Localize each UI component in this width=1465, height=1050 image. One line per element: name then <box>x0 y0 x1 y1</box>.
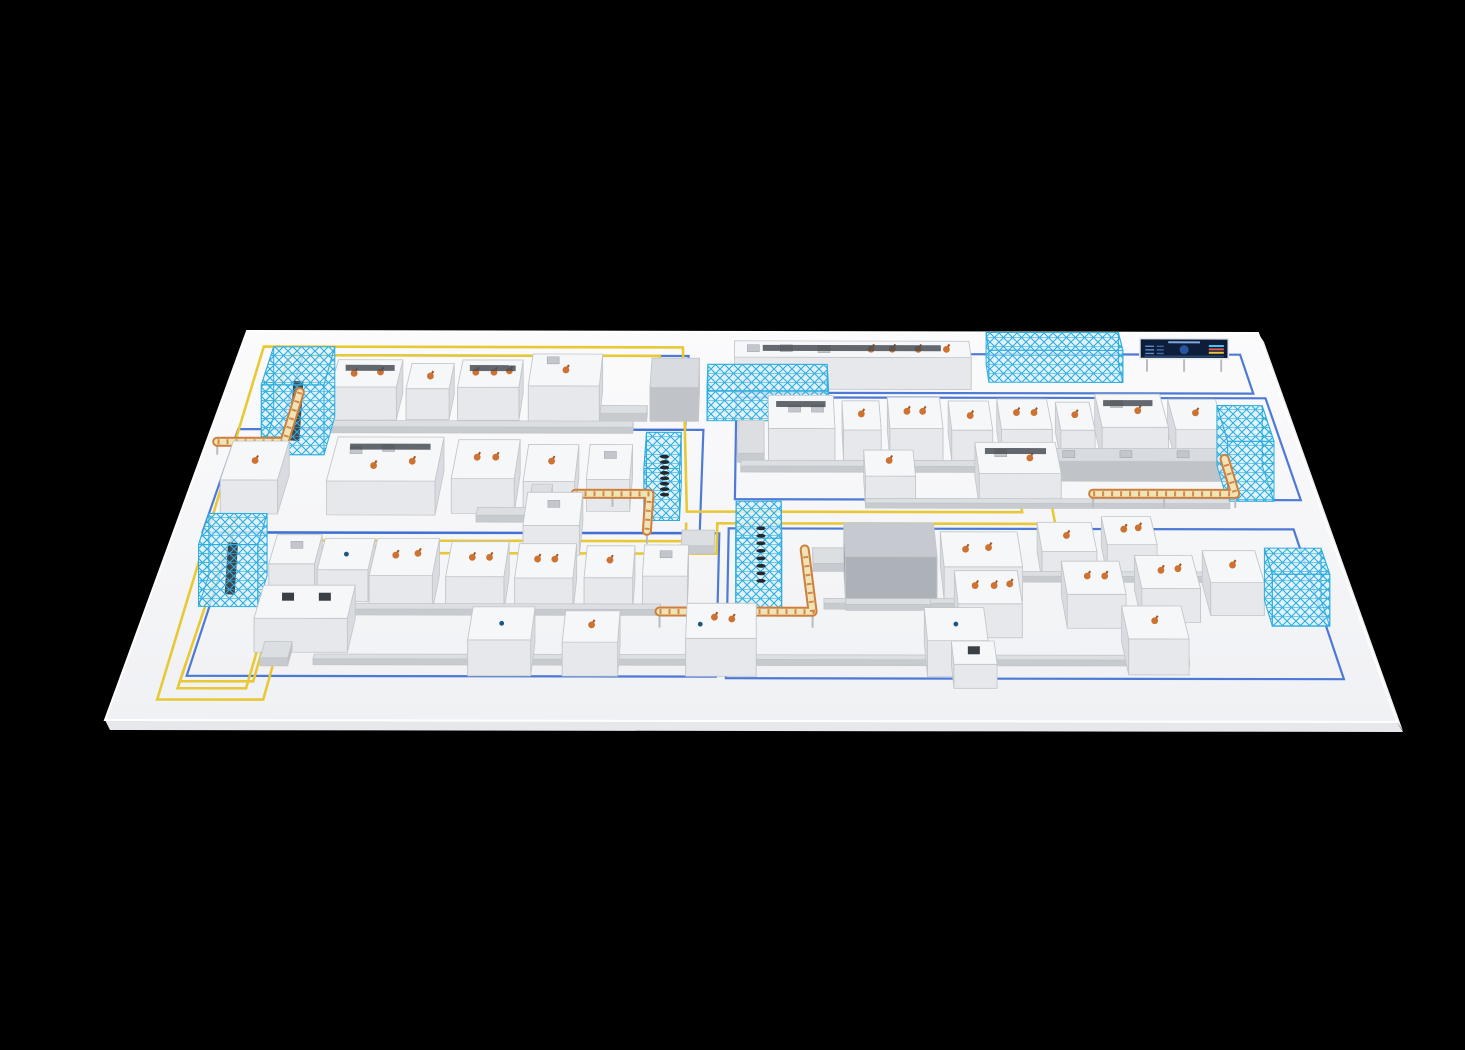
robot-arm-marker <box>370 462 377 469</box>
robot-arm-marker <box>607 557 614 564</box>
dashboard-glyph <box>1180 345 1189 354</box>
equipment-marker <box>319 593 331 601</box>
box-front-face <box>406 389 449 420</box>
buffer-disc <box>660 487 669 491</box>
robot-arm-marker <box>1084 573 1091 580</box>
box-top-face <box>975 442 1061 473</box>
robot-arm-marker <box>886 457 893 464</box>
storage-rack <box>986 332 1123 382</box>
robot-arm-marker <box>1151 617 1158 624</box>
robot-cell <box>1061 561 1126 628</box>
box-front-face <box>643 576 688 608</box>
equipment-marker <box>291 541 303 548</box>
box-front-face <box>598 413 646 421</box>
conveyor-segment <box>598 405 647 421</box>
press-machine <box>650 358 700 421</box>
buffer-disc <box>660 476 669 480</box>
robot-cell <box>951 641 997 688</box>
box-front-face <box>528 386 599 422</box>
factory-floor-3d-viewport[interactable] <box>0 0 1465 1050</box>
rack-truss <box>199 513 268 544</box>
robot-arm-marker <box>1134 407 1141 414</box>
operator-marker <box>499 621 504 626</box>
robot-arm-marker <box>562 367 569 374</box>
buffer-disc <box>756 556 765 560</box>
box-top-face <box>329 421 633 428</box>
box-front-face <box>220 480 277 514</box>
box-top-face <box>458 360 524 387</box>
storage-rack <box>1264 548 1329 626</box>
robot-arm-marker <box>1006 581 1013 588</box>
operator-marker <box>698 622 703 627</box>
robot-arm-marker <box>427 373 434 380</box>
robot-arm-marker <box>1026 455 1033 462</box>
robot-arm-marker <box>1158 567 1165 574</box>
equipment-marker <box>1063 451 1075 458</box>
conveyor-segment <box>329 421 633 434</box>
robot-arm-marker <box>728 616 735 623</box>
box-top-face <box>254 585 355 618</box>
robot-arm-marker <box>904 408 911 415</box>
operator-marker <box>953 622 958 627</box>
robot-cell <box>686 603 757 676</box>
rack-truss <box>1272 574 1330 626</box>
box-front-face <box>329 427 633 434</box>
robot-cell <box>451 440 520 514</box>
box-top-face <box>997 399 1053 429</box>
turntable-station <box>260 641 292 665</box>
box-top-face <box>1061 561 1126 594</box>
box-front-face <box>954 664 997 688</box>
box-top-face <box>523 492 583 525</box>
box-top-face <box>515 544 577 578</box>
buffer-disc <box>756 526 765 530</box>
buffer-disc <box>660 460 669 464</box>
rack-truss <box>989 350 1123 382</box>
box-top-face <box>650 358 700 387</box>
box-top-face <box>1095 394 1169 427</box>
robot-arm-marker <box>1063 532 1070 539</box>
robot-arm-marker <box>1013 409 1020 416</box>
box-top-face <box>844 523 937 557</box>
robot-arm-marker <box>1175 565 1182 572</box>
press-machine <box>844 523 937 601</box>
robot-arm-marker <box>415 550 422 557</box>
buffer-disc <box>660 455 669 459</box>
robot-arm-marker <box>474 454 481 461</box>
box-top-face <box>846 599 931 605</box>
buffer-disc <box>660 493 669 497</box>
box-front-face <box>650 387 698 421</box>
box-top-face <box>269 535 322 564</box>
box-top-face <box>451 440 520 479</box>
buffer-tower <box>736 501 782 610</box>
robot-arm-marker <box>492 454 499 461</box>
robot-arm-marker <box>1071 411 1078 418</box>
robot-cell <box>975 442 1061 507</box>
robot-cell <box>369 539 439 612</box>
box-top-face <box>738 420 765 453</box>
robot-cell <box>220 441 289 514</box>
robot-cell <box>528 354 602 422</box>
robot-arm-marker <box>1031 409 1038 416</box>
box-front-face <box>846 604 931 610</box>
robot-arm-marker <box>991 582 998 589</box>
equipment-marker <box>547 357 559 364</box>
buffer-disc <box>660 471 669 475</box>
conveyor-segment <box>846 599 931 611</box>
conveyor-segment <box>865 498 1230 508</box>
equipment-marker <box>660 551 672 558</box>
buffer-disc <box>660 466 669 470</box>
box-front-face <box>1211 583 1265 616</box>
buffer-disc <box>756 534 765 538</box>
robot-arm-marker <box>1120 526 1127 533</box>
robot-cell <box>406 363 454 419</box>
box-top-face <box>446 542 510 577</box>
robot-arm-marker <box>943 346 950 353</box>
conveyor-segment <box>813 548 847 572</box>
box-top-face <box>643 545 689 576</box>
robot-arm-marker <box>985 544 992 551</box>
robot-cell <box>864 450 916 506</box>
box-top-face <box>326 437 444 481</box>
rack-truss <box>986 332 1123 350</box>
robot-cell <box>768 395 835 462</box>
equipment-marker <box>282 593 294 601</box>
robot-arm-marker <box>548 458 555 465</box>
box-front-face <box>813 563 846 571</box>
box-top-face <box>686 603 757 638</box>
robot-cell <box>1202 551 1264 616</box>
rack-truss <box>707 364 829 391</box>
rack-truss <box>261 347 335 385</box>
storage-rack <box>199 513 268 606</box>
box-top-face <box>681 530 714 546</box>
rack-truss <box>736 501 782 538</box>
robot-arm-marker <box>392 552 399 559</box>
box-top-face <box>768 395 835 428</box>
box-top-face <box>940 532 1022 567</box>
box-front-face <box>468 640 531 676</box>
buffer-disc <box>756 571 765 575</box>
robot-arm-marker <box>919 408 926 415</box>
buffer-disc <box>756 579 765 583</box>
box-front-face <box>845 557 937 601</box>
robot-cell <box>331 360 403 420</box>
box-top-face <box>887 397 943 428</box>
robot-arm-marker <box>588 621 595 628</box>
equipment-marker <box>1177 451 1189 458</box>
box-top-face <box>1101 517 1157 545</box>
box-front-face <box>458 387 519 420</box>
box-top-face <box>586 444 632 479</box>
robot-arm-marker <box>551 556 558 563</box>
robot-arm-marker <box>967 412 974 419</box>
box-top-face <box>260 641 292 657</box>
equipment-marker <box>548 500 560 507</box>
box-front-face <box>331 387 397 420</box>
robot-arm-marker <box>252 457 259 464</box>
robot-arm-marker <box>962 546 969 553</box>
buffer-disc <box>756 541 765 545</box>
robot-arm-marker <box>486 554 493 561</box>
robot-arm-marker <box>534 556 541 563</box>
box-top-face <box>598 405 647 413</box>
control-room <box>326 437 444 515</box>
equipment-marker <box>747 345 759 352</box>
box-front-face <box>769 428 835 462</box>
equipment-marker <box>604 451 616 458</box>
robot-cell <box>1122 606 1190 675</box>
robot-arm-marker <box>351 370 358 377</box>
robot-arm-marker <box>972 582 979 589</box>
robot-arm-marker <box>1135 524 1142 531</box>
press-machine <box>1039 448 1233 481</box>
box-top-face <box>954 571 1022 604</box>
box-front-face <box>1129 639 1189 675</box>
robot-cell <box>446 542 510 612</box>
robot-cell <box>562 611 620 676</box>
box-front-face <box>260 658 288 666</box>
box-top-face <box>369 539 439 576</box>
equipment-marker <box>1120 451 1132 458</box>
storage-rack <box>1217 406 1274 502</box>
robot-cell <box>458 360 524 420</box>
conveyor-segment <box>738 420 765 462</box>
box-top-face <box>813 548 847 564</box>
box-front-face <box>686 638 757 676</box>
buffer-disc <box>756 549 765 553</box>
equipment-marker <box>968 646 980 654</box>
robot-cell <box>643 545 689 608</box>
box-top-face <box>1134 555 1200 588</box>
factory-3d-scene <box>0 0 1465 1050</box>
box-top-face <box>331 360 403 387</box>
box-front-face <box>562 642 617 676</box>
robot-cell <box>584 546 635 611</box>
box-front-face <box>1067 594 1126 628</box>
robot-arm-marker <box>858 411 865 418</box>
buffer-disc <box>756 564 765 568</box>
buffer-disc <box>660 482 669 486</box>
robot-arm-marker <box>409 458 416 465</box>
robot-cell <box>515 544 577 613</box>
robot-arm-marker <box>1229 562 1236 569</box>
robot-cell <box>468 607 535 676</box>
box-top-face <box>865 498 1230 503</box>
box-front-face <box>326 481 435 515</box>
robot-cell <box>586 444 632 511</box>
robot-arm-marker <box>711 614 718 621</box>
robot-arm-marker <box>1101 573 1108 580</box>
robot-arm-marker <box>1192 409 1199 416</box>
rack-truss <box>1264 548 1329 574</box>
operator-marker <box>344 552 349 557</box>
box-front-face <box>1042 461 1233 481</box>
rack-truss <box>199 545 258 607</box>
robot-arm-marker <box>469 554 476 561</box>
